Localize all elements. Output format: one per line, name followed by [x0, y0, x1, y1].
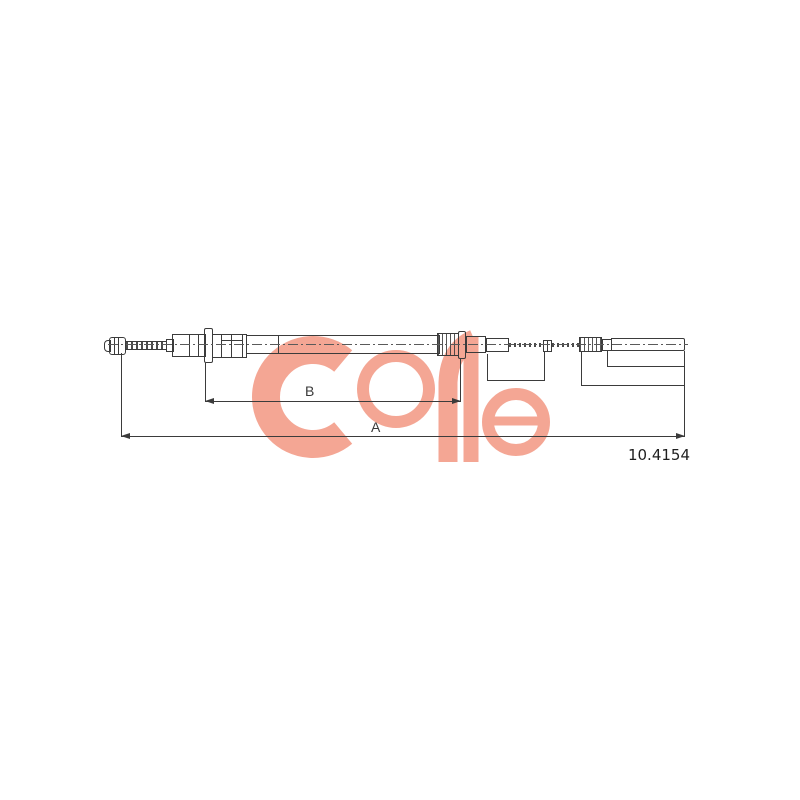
barrel-groove-line [114, 338, 115, 354]
bracket-outline-line [607, 366, 685, 367]
guide-tube-inner [486, 338, 509, 352]
part-number: 10.4154 [600, 446, 690, 464]
dim-a-label: A [371, 420, 380, 434]
dim-b-arrow-right [452, 398, 461, 404]
dim-a-line [121, 436, 685, 437]
logo-letter-o [363, 356, 429, 422]
dim-a-extension-left [121, 353, 122, 437]
adjuster-nut [221, 334, 243, 358]
cable-centerline [108, 344, 688, 345]
nut-divider-line [231, 335, 232, 357]
threaded-rod [125, 341, 167, 350]
bracket-outline-line [581, 352, 582, 386]
bracket-outline-line [544, 352, 545, 381]
bracket-outline-line [487, 354, 488, 381]
bracket-outline-line [607, 351, 608, 367]
dim-a-arrow-left [121, 433, 130, 439]
bracket-outline-line [487, 380, 545, 381]
bracket-outline-line [581, 385, 685, 386]
cofle-logo-watermark [0, 0, 800, 800]
product-technical-drawing: B A 10.4154 [0, 0, 800, 800]
dim-b-extension-left [205, 363, 206, 402]
dim-b-label: B [305, 384, 314, 398]
dim-a-arrow-right [676, 433, 685, 439]
dim-b-line [205, 401, 461, 402]
cylinder-section-line [189, 335, 190, 356]
cylinder-section-line [198, 335, 199, 356]
dim-b-extension-right [460, 359, 461, 402]
barrel-groove-line [118, 338, 119, 354]
dim-b-arrow-left [205, 398, 214, 404]
ferrule-divider-line [547, 341, 548, 351]
mounting-flange-mid [458, 331, 466, 359]
dim-a-extension-right [684, 351, 685, 437]
nut-top-line [222, 340, 242, 341]
